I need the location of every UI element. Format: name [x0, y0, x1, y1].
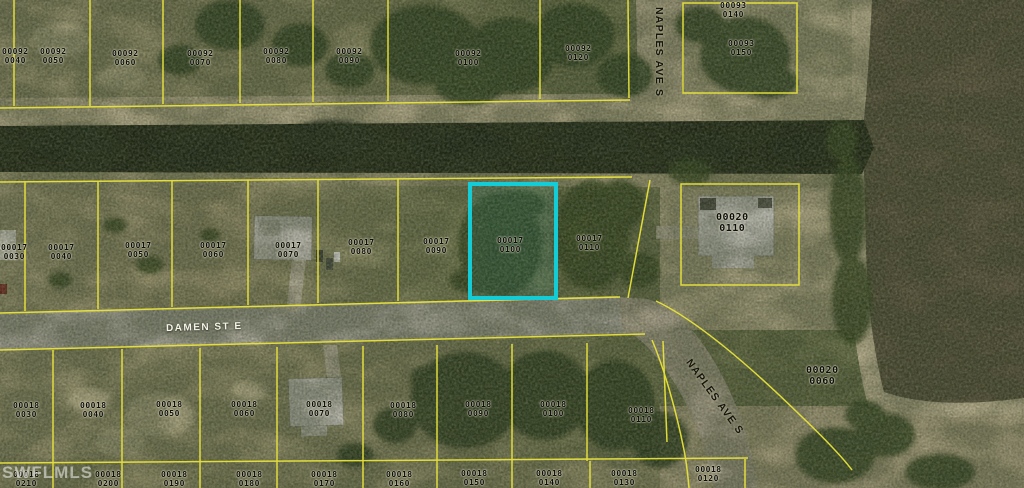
parcel-label: 000920050	[40, 47, 67, 65]
parcel-label: 000180150	[461, 469, 488, 487]
parcel-lot: 0060	[203, 250, 224, 259]
parcel-label: 000920060	[112, 49, 139, 67]
parcel-block: 00017	[576, 234, 603, 243]
parcel-lot: 0100	[500, 245, 521, 254]
parcel-block: 00018	[390, 401, 417, 410]
parcel-lot: 0110	[719, 223, 745, 234]
parcel-block: 00018	[95, 470, 122, 479]
parcel-block: 00017	[125, 241, 152, 250]
parcel-block: 00092	[112, 49, 139, 58]
parcel-lot: 0140	[539, 478, 560, 487]
parcel-label: 000170030	[1, 243, 28, 261]
parcel-block: 00017	[1, 243, 28, 252]
parcel-block: 00018	[231, 400, 258, 409]
parcel-block: 00018	[236, 470, 263, 479]
parcel-label: 000180130	[611, 469, 638, 487]
parcel-label: 000180120	[695, 465, 722, 483]
parcel-lot: 0150	[464, 478, 485, 487]
parcel-block: 00018	[13, 401, 40, 410]
parcel-lot: 0060	[234, 409, 255, 418]
parcel-lot: 0060	[115, 58, 136, 67]
parcel-lot: 0140	[723, 10, 744, 19]
parcel-label: 000180190	[161, 470, 188, 488]
parcel-block: 00018	[80, 401, 107, 410]
parcel-block: 00018	[695, 465, 722, 474]
parcel-block: 00092	[187, 49, 214, 58]
parcel-block: 00017	[275, 241, 302, 250]
parcel-lot: 0130	[614, 478, 635, 487]
parcel-lot: 0070	[190, 58, 211, 67]
parcel-block: 00020	[806, 365, 839, 376]
parcel-lot: 0050	[159, 409, 180, 418]
parcel-label: 000920070	[187, 49, 214, 67]
parcel-label: 000920100	[455, 49, 482, 67]
parcel-block: 00018	[540, 400, 567, 409]
parcel-lot: 0090	[468, 409, 489, 418]
parcel-lot: 0050	[43, 56, 64, 65]
parcel-lot: 0200	[98, 479, 119, 488]
parcel-lot: 0190	[164, 479, 185, 488]
parcel-lot: 0040	[51, 252, 72, 261]
parcel-block: 00018	[628, 406, 655, 415]
parcel-block: 00018	[161, 470, 188, 479]
parcel-label: 000180160	[386, 470, 413, 488]
parcel-label: 000930140	[720, 1, 747, 19]
parcel-lot: 0090	[426, 246, 447, 255]
parcel-lot: 0120	[568, 53, 589, 62]
parcel-block: 00018	[465, 400, 492, 409]
parcel-lot: 0080	[351, 247, 372, 256]
parcel-label: 000170070	[275, 241, 302, 259]
parcel-block: 00093	[720, 1, 747, 10]
parcel-lot: 0170	[314, 479, 335, 488]
parcel-block: 00017	[423, 237, 450, 246]
parcel-block: 00017	[48, 243, 75, 252]
parcel-lot: 0180	[239, 479, 260, 488]
parcel-lot: 0120	[698, 474, 719, 483]
parcel-lot: 0080	[266, 56, 287, 65]
parcel-label: 000180200	[95, 470, 122, 488]
parcel-label: 000930150	[728, 39, 755, 57]
parcel-label: 000170080	[348, 238, 375, 256]
parcel-label: 000180090	[465, 400, 492, 418]
parcel-label: 000180060	[231, 400, 258, 418]
parcel-label: 000920040	[2, 47, 29, 65]
parcel-block: 00092	[455, 49, 482, 58]
parcel-label: 000920080	[263, 47, 290, 65]
parcel-lot: 0110	[579, 243, 600, 252]
street-label-naples-ave-s-top: NAPLES AVE S	[653, 7, 665, 97]
parcel-label: 000180030	[13, 401, 40, 419]
parcel-lot: 0110	[631, 415, 652, 424]
parcel-lot: 0060	[809, 376, 835, 387]
parcel-block: 00017	[348, 238, 375, 247]
parcel-label: 000180110	[628, 406, 655, 424]
parcel-lot: 0080	[393, 410, 414, 419]
parcel-lot: 0100	[458, 58, 479, 67]
parcel-lot: 0090	[339, 56, 360, 65]
parcel-block: 00092	[2, 47, 29, 56]
parcel-label: 000170060	[200, 241, 227, 259]
parcel-block: 00092	[263, 47, 290, 56]
parcel-block: 00093	[728, 39, 755, 48]
parcel-label: 000180100	[540, 400, 567, 418]
street-label-damen-st-e: DAMEN ST E	[166, 321, 243, 334]
parcel-label-highlighted: 000170100	[497, 236, 524, 254]
parcel-label: 000200060	[806, 365, 839, 387]
parcel-lot: 0070	[278, 250, 299, 259]
parcel-lot: 0150	[731, 48, 752, 57]
parcel-label: 000170090	[423, 237, 450, 255]
parcel-block: 00018	[306, 400, 333, 409]
parcel-block: 00092	[40, 47, 67, 56]
parcel-block: 00018	[461, 469, 488, 478]
parcel-lot: 0050	[128, 250, 149, 259]
parcel-label: 000170050	[125, 241, 152, 259]
parcel-label: 000180050	[156, 400, 183, 418]
parcel-label: 000920090	[336, 47, 363, 65]
parcel-block: 00020	[716, 212, 749, 223]
parcel-lot: 0100	[543, 409, 564, 418]
parcel-label: 000200110	[716, 212, 749, 234]
parcel-block: 00018	[311, 470, 338, 479]
parcel-lot: 0160	[389, 479, 410, 488]
parcel-label: 000180070	[306, 400, 333, 418]
aerial-parcel-map: 000920040 000920050 000920060 000920070 …	[0, 0, 1024, 488]
parcel-block: 00017	[497, 236, 524, 245]
parcel-block: 00018	[156, 400, 183, 409]
parcel-label: 000180140	[536, 469, 563, 487]
parcel-label: 000170040	[48, 243, 75, 261]
parcel-block: 00018	[386, 470, 413, 479]
parcel-block: 00092	[336, 47, 363, 56]
parcel-lot: 0030	[16, 410, 37, 419]
parcel-lot: 0040	[5, 56, 26, 65]
parcel-block: 00018	[611, 469, 638, 478]
parcel-label: 000180080	[390, 401, 417, 419]
parcel-label: 000180180	[236, 470, 263, 488]
parcel-label: 000920120	[565, 44, 592, 62]
parcel-block: 00018	[536, 469, 563, 478]
parcel-label: 000180040	[80, 401, 107, 419]
parcel-lot: 0070	[309, 409, 330, 418]
parcel-label: 000180170	[311, 470, 338, 488]
parcel-block: 00017	[200, 241, 227, 250]
parcel-lot: 0030	[4, 252, 25, 261]
parcel-lot: 0040	[83, 410, 104, 419]
parcel-block: 00092	[565, 44, 592, 53]
mls-watermark: SWFLMLS	[2, 463, 93, 483]
parcel-label: 000170110	[576, 234, 603, 252]
